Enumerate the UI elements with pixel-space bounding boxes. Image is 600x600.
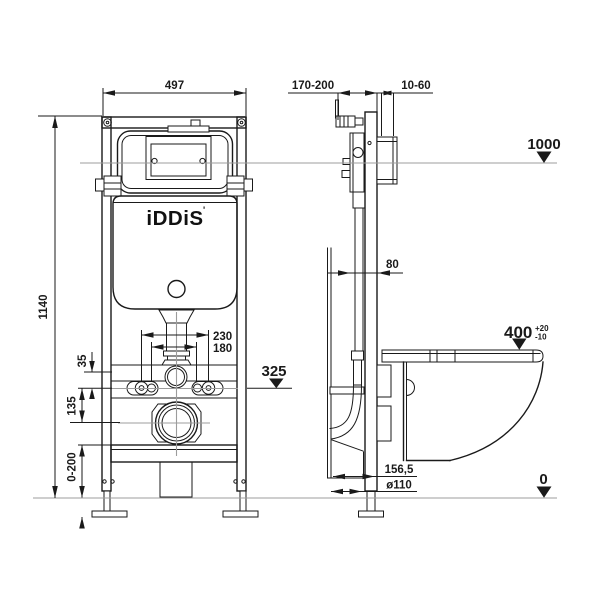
- svg-text:325: 325: [261, 363, 286, 380]
- level-marker-floor: 0: [537, 471, 552, 498]
- dimensions: 497 1140 170-200 10-60 80: [38, 80, 561, 529]
- installation-frame-drawing: iDDiS ': [0, 0, 600, 600]
- front-view: iDDiS ': [92, 117, 258, 517]
- svg-text:-10: -10: [535, 333, 547, 342]
- svg-text:400: 400: [504, 323, 532, 342]
- svg-text:180: 180: [213, 343, 232, 355]
- supply-valve: [336, 100, 364, 127]
- svg-text:35: 35: [77, 354, 89, 367]
- svg-text:230: 230: [213, 331, 232, 343]
- svg-text:80: 80: [386, 259, 399, 271]
- level-marker-1000: 1000: [527, 136, 560, 163]
- level-marker-400: 400 +20 -10: [504, 323, 549, 350]
- svg-text:0-200: 0-200: [67, 452, 79, 481]
- technical-drawing-page: iDDiS ': [0, 0, 600, 600]
- svg-text:156,5: 156,5: [385, 464, 414, 476]
- flush-pipe-side: [328, 208, 364, 478]
- side-bracket-left: [96, 176, 122, 196]
- svg-text:1140: 1140: [38, 295, 50, 320]
- svg-text:10-60: 10-60: [401, 80, 430, 92]
- dim-frame-height: 1140: [38, 116, 102, 498]
- side-bracket-right: [227, 176, 253, 196]
- dim-outlet-diameter: ø110: [331, 480, 417, 495]
- brand-logo-mark: ': [203, 205, 205, 215]
- dim-outlet-offset: 156,5: [333, 464, 417, 479]
- dim-depth-ranges: 170-200 10-60: [288, 80, 433, 136]
- svg-text:ø110: ø110: [386, 480, 412, 492]
- wall-bracket: [377, 137, 397, 184]
- svg-text:497: 497: [165, 80, 184, 92]
- dim-front-width: 497: [103, 80, 246, 116]
- svg-text:170-200: 170-200: [292, 80, 334, 92]
- tank-side: [342, 133, 365, 208]
- bowl-mounting-rod: [330, 387, 364, 394]
- flush-plate-unit: [96, 120, 253, 196]
- svg-text:135: 135: [67, 396, 79, 416]
- brand-logo: iDDiS: [146, 207, 203, 230]
- cistern: iDDiS ': [113, 196, 237, 309]
- spacer-block-lower: [377, 406, 391, 441]
- level-marker-325: 325: [247, 363, 292, 388]
- svg-text:1000: 1000: [527, 136, 560, 153]
- toilet-bowl: [382, 350, 543, 461]
- svg-text:0: 0: [539, 471, 547, 488]
- spacer-block-upper: [377, 365, 391, 397]
